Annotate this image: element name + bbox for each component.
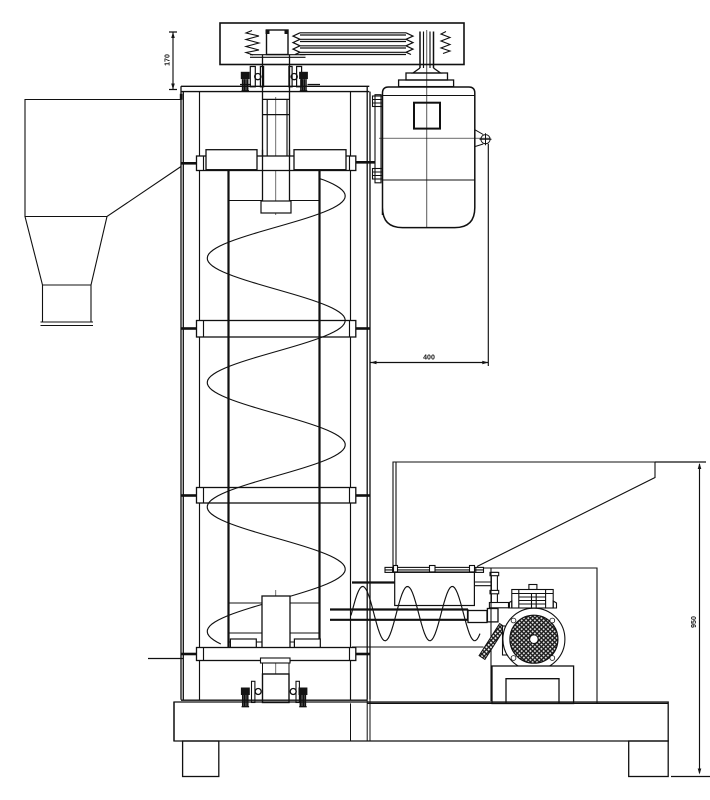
- svg-text:170: 170: [165, 54, 172, 66]
- svg-text:950: 950: [691, 616, 698, 628]
- svg-text:400: 400: [423, 355, 435, 362]
